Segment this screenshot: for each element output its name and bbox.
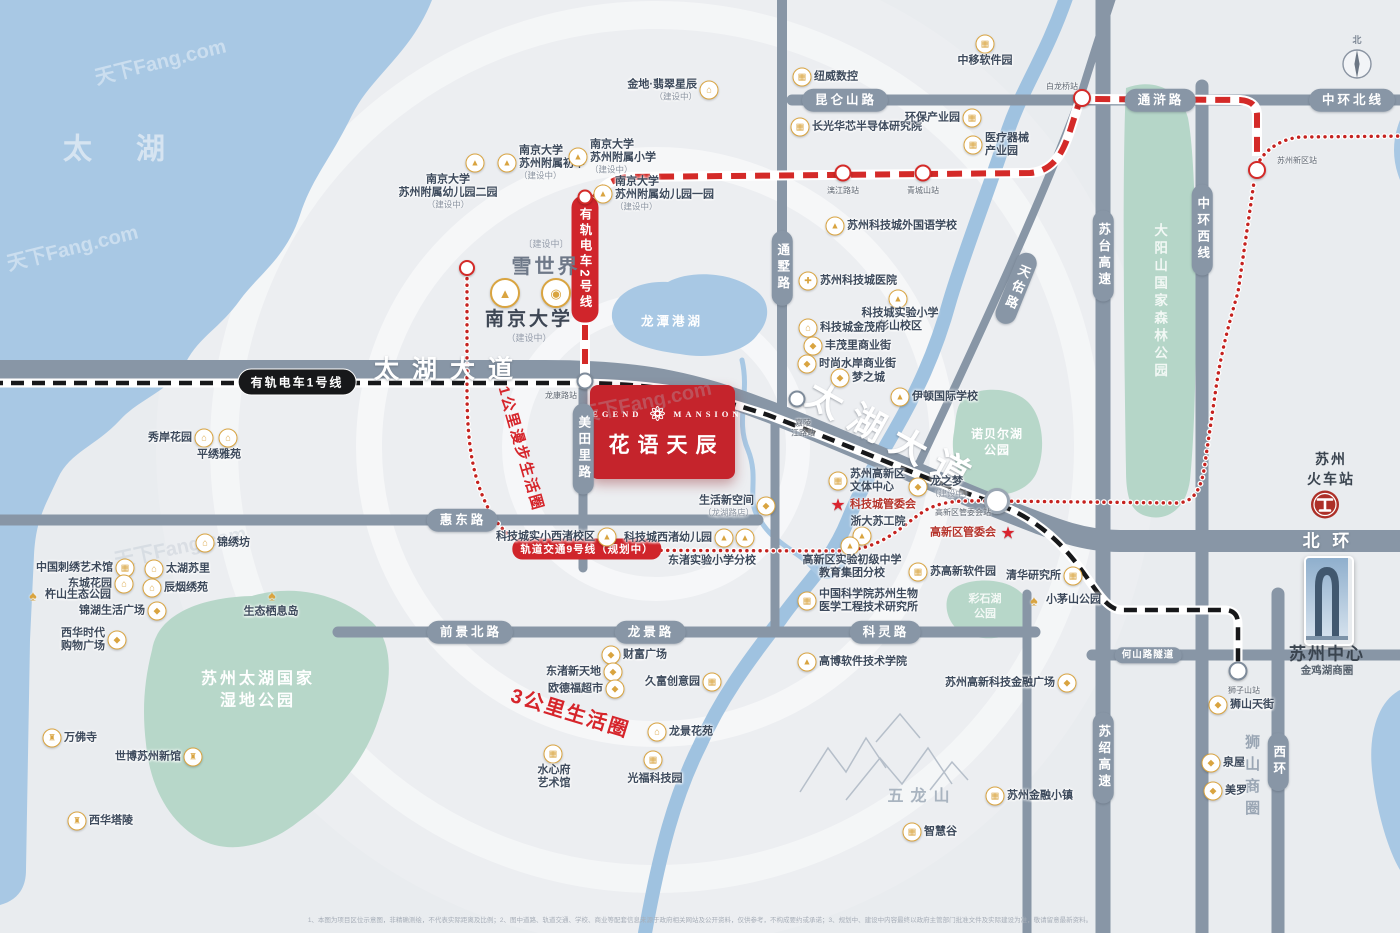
school-icon: ▲ xyxy=(891,388,910,407)
shop-icon: ◆ xyxy=(909,478,928,497)
poi-status: （建设中） xyxy=(590,165,656,175)
building-icon: ▦ xyxy=(986,787,1005,806)
poi-label: 生态栖息岛 xyxy=(244,605,299,618)
poi-label: 南京大学 苏州附属幼儿园一园（建设中） xyxy=(615,176,714,213)
poi-name: 财富广场 xyxy=(623,648,667,661)
suzhou-center-photo xyxy=(1304,556,1354,646)
area-label: 狮山商圈 xyxy=(1241,734,1261,822)
poi-label: 小茅山公园 xyxy=(1046,593,1101,606)
compass-north-label: 北 xyxy=(1340,33,1374,46)
station-dot xyxy=(459,260,475,276)
road-label: 龙景路 xyxy=(615,621,686,644)
hospital-icon: ✚ xyxy=(799,272,818,291)
poi-name: 科技城金茂府 xyxy=(820,321,886,334)
poi-label: 南京大学 苏州附属幼儿园二园（建设中） xyxy=(399,174,498,211)
poi-label: 苏州高新区 文体中心 xyxy=(850,468,905,494)
poi-label: 南京大学 苏州附属小学（建设中） xyxy=(590,139,656,176)
school-icon: ▲ xyxy=(841,537,860,556)
poi-name: 苏州金融小镇 xyxy=(1007,789,1073,802)
poi-name: 泉屋 xyxy=(1223,756,1245,769)
road-label: 美田里路 xyxy=(573,404,594,495)
house-icon: ⌂ xyxy=(143,579,162,598)
jinjihu-cbd-label: 金鸡湖商圈 xyxy=(1301,663,1354,678)
poi-name: 西华时代 购物广场 xyxy=(61,627,105,653)
building-icon: ▦ xyxy=(1064,567,1083,586)
poi-label: 西华时代 购物广场 xyxy=(61,627,105,653)
road-label: 中环西线 xyxy=(1192,185,1213,276)
temple-icon: ♜ xyxy=(43,729,62,748)
poi-label: 丰茂里商业街 xyxy=(825,339,891,352)
poi-label: 财富广场 xyxy=(623,648,667,661)
building-icon: ▦ xyxy=(963,109,982,128)
poi-name: 杵山生态公园 xyxy=(45,588,111,601)
poi-label: 苏州科技城医院 xyxy=(820,274,897,287)
poi-name: 金地·翡翠星辰 xyxy=(627,78,697,91)
poi-label: 水心府 艺术馆 xyxy=(538,764,571,790)
area-label: 诺贝尔湖 公园 xyxy=(971,426,1023,458)
poi-label: 锦绣坊 xyxy=(217,536,250,549)
poi-name: 世博苏州新馆 xyxy=(115,750,181,763)
building-icon: ▦ xyxy=(703,673,722,692)
poi-name: 伊顿国际学校 xyxy=(912,390,978,403)
snow-world-name: 雪世界 xyxy=(512,250,581,279)
poi-status: （龙湖路店） xyxy=(699,508,754,518)
poi-label: 世博苏州新馆 xyxy=(115,750,181,763)
poi-label: 太湖苏里 xyxy=(166,562,210,575)
road-label: 惠东路 xyxy=(427,509,498,532)
school-icon: ▲ xyxy=(826,217,845,236)
station-label: 苏州新区站 xyxy=(1277,156,1317,166)
station-dot xyxy=(789,391,806,408)
poi-label: 龙之梦（建设中） xyxy=(930,475,973,498)
poi-label: 东渚实验小学分校 xyxy=(668,554,756,567)
poi-name: 美罗 xyxy=(1225,784,1247,797)
road-label: 何山路隧道 xyxy=(1115,647,1182,663)
school-icon: ▲ xyxy=(598,528,617,547)
poi-name: 水心府 艺术馆 xyxy=(538,764,571,790)
school-icon: ▲ xyxy=(736,529,755,548)
poi-label: 西华塔陵 xyxy=(89,814,133,827)
nanjing-university-landmark: 南京大学 （建设中） xyxy=(485,304,573,344)
poi-name: 辰烟绣苑 xyxy=(164,581,208,594)
poi-label: 金地·翡翠星辰（建设中） xyxy=(627,78,697,101)
poi-label: 科技城管委会 xyxy=(850,498,916,511)
road-name: 北 环 xyxy=(1303,533,1354,550)
tram1-label: 有轨电车1号线 xyxy=(238,369,357,396)
building-icon: ▦ xyxy=(798,592,817,611)
east-water xyxy=(1371,120,1400,870)
poi-name: 科技城实小西渚校区 xyxy=(496,530,595,543)
building-icon: ▦ xyxy=(909,563,928,582)
poi-name: 医疗器械 产业园 xyxy=(985,132,1029,158)
poi-name: 西华塔陵 xyxy=(89,814,133,827)
shop-icon: ◆ xyxy=(1058,674,1077,693)
poi-name: 纽威数控 xyxy=(814,70,858,83)
poi-name: 浙大苏工院 xyxy=(851,515,906,528)
area-label: 大阳山国家森林公园 xyxy=(1150,223,1168,381)
poi-name: 高新区实验初级中学 教育集团分校 xyxy=(803,554,902,580)
road-label: 前景北路 xyxy=(427,621,513,644)
poi-name: 梦之城 xyxy=(852,371,885,384)
station-label: 漓江路站 xyxy=(827,186,859,196)
building-icon: ▦ xyxy=(644,751,663,770)
poi-name: 南京大学 苏州附属小学 xyxy=(590,139,656,165)
poi-label: 杵山生态公园 xyxy=(45,588,111,601)
road-label: 通墅路 xyxy=(772,231,793,306)
poi-status: （建设中） xyxy=(519,171,585,181)
building-icon: ▦ xyxy=(976,35,995,54)
station-dot xyxy=(835,165,852,182)
nanjing-university-status: （建设中） xyxy=(485,331,573,344)
poi-name: 高博软件技术学院 xyxy=(819,655,907,668)
school-icon: ▲ xyxy=(569,148,588,167)
shop-icon: ◆ xyxy=(757,497,776,516)
building-icon: ▦ xyxy=(793,68,812,87)
poi-label: 苏州高新科技金融广场 xyxy=(945,676,1055,689)
poi-label: 清华研究所 xyxy=(1006,569,1061,582)
station-dot xyxy=(1248,161,1266,179)
poi-label: 平绣雅苑 xyxy=(197,448,241,461)
house-icon: ⌂ xyxy=(145,560,164,579)
poi-name: 智慧谷 xyxy=(924,825,957,838)
railway-station-label: 苏州 火车站 xyxy=(1307,449,1355,489)
poi-label: 环保产业园 xyxy=(905,111,960,124)
station-dot xyxy=(1229,662,1248,681)
shop-icon: ◆ xyxy=(1204,782,1223,801)
project-brand-right: MANSION xyxy=(673,409,742,419)
building-icon: ▦ xyxy=(903,823,922,842)
poi-label: 时尚水岸商业街 xyxy=(819,357,896,370)
road-name: 太湖大道 xyxy=(374,358,526,383)
poi-label: 中移软件园 xyxy=(958,54,1013,67)
poi-label: 浙大苏工院 xyxy=(851,515,906,528)
tree-icon: ♠ xyxy=(25,587,42,604)
station-label: 嘉陵 江路站 xyxy=(791,418,815,437)
poi-label: 龙景花苑 xyxy=(669,725,713,738)
poi-name: 生活新空间 xyxy=(699,494,754,507)
poi-name: 苏州科技城医院 xyxy=(820,274,897,287)
poi-name: 锦湖生活广场 xyxy=(79,604,145,617)
poi-name: 南京大学 苏州附属幼儿园二园 xyxy=(399,174,498,200)
poi-label: 美罗 xyxy=(1225,784,1247,797)
station-dot xyxy=(578,190,593,205)
school-icon: ▲ xyxy=(715,529,734,548)
project-name: 花语天辰 xyxy=(601,429,725,459)
poi-name: 科技城西渚幼儿园 xyxy=(624,531,712,544)
nanjing-university-name: 南京大学 xyxy=(485,304,573,331)
poi-label: 泉屋 xyxy=(1223,756,1245,769)
poi-label: 苏州金融小镇 xyxy=(1007,789,1073,802)
poi-name: 南京大学 苏州附属幼儿园一园 xyxy=(615,176,714,202)
tree-icon: ♠ xyxy=(264,587,281,604)
shop-icon: ◆ xyxy=(1209,696,1228,715)
poi-label: 中国刺绣艺术馆 xyxy=(36,561,113,574)
poi-label: 光福科技园 xyxy=(628,772,683,785)
shop-icon: ◆ xyxy=(798,355,817,374)
poi-label: 辰烟绣苑 xyxy=(164,581,208,594)
building-icon: ▦ xyxy=(829,472,848,491)
station-label: 狮子山站 xyxy=(1228,686,1260,696)
star-icon: ★ xyxy=(830,497,847,514)
tree-icon: ♠ xyxy=(1026,592,1043,609)
poi-name: 中国科学院苏州生物 医学工程技术研究所 xyxy=(819,588,918,614)
station-label: 白龙桥站 xyxy=(1046,82,1078,92)
poi-name: 久富创意园 xyxy=(645,675,700,688)
house-icon: ⌂ xyxy=(799,319,818,338)
poi-name: 中国刺绣艺术馆 xyxy=(36,561,113,574)
poi-name: 太湖苏里 xyxy=(166,562,210,575)
poi-label: 医疗器械 产业园 xyxy=(985,132,1029,158)
station-dot xyxy=(915,165,932,182)
poi-label: 苏高新软件园 xyxy=(930,565,996,578)
poi-label: 伊顿国际学校 xyxy=(912,390,978,403)
poi-label: 纽威数控 xyxy=(814,70,858,83)
poi-label: 梦之城 xyxy=(852,371,885,384)
poi-name: 平绣雅苑 xyxy=(197,448,241,461)
poi-label: 秀岸花园 xyxy=(148,431,192,444)
school-icon: ▲ xyxy=(466,154,485,173)
shop-icon: ◆ xyxy=(148,602,167,621)
area-label: 苏州太湖国家 湿地公园 xyxy=(201,668,315,711)
house-icon: ⌂ xyxy=(115,575,134,594)
poi-name: 狮山天街 xyxy=(1230,698,1274,711)
shop-icon: ◆ xyxy=(831,369,850,388)
poi-label: 万佛寺 xyxy=(64,731,97,744)
temple-icon: ♜ xyxy=(68,812,87,831)
station-label: 龙康路站 xyxy=(545,391,577,401)
poi-name: 清华研究所 xyxy=(1006,569,1061,582)
poi-name: 苏州高新科技金融广场 xyxy=(945,676,1055,689)
poi-name: 东渚新天地 xyxy=(546,665,601,678)
poi-name: 苏高新软件园 xyxy=(930,565,996,578)
road-label: 苏台高速 xyxy=(1093,211,1114,302)
area-label: 彩石湖 公园 xyxy=(969,592,1002,622)
suzhou-center-label: 苏州中心 xyxy=(1289,640,1365,665)
building-icon: ▦ xyxy=(964,136,983,155)
shop-icon: ◆ xyxy=(804,337,823,356)
poi-name: 时尚水岸商业街 xyxy=(819,357,896,370)
poi-label: 中国科学院苏州生物 医学工程技术研究所 xyxy=(819,588,918,614)
station-dot xyxy=(577,373,594,390)
school-icon: ▲ xyxy=(889,290,908,309)
poi-name: 科技城管委会 xyxy=(850,498,916,511)
poi-name: 生态栖息岛 xyxy=(244,605,299,618)
disclaimer-text: 1、本图为项目区位示意图，非精确测绘，不代表实际距离及比例；2、图中道路、轨道交… xyxy=(260,914,1140,924)
area-label: 五龙山 xyxy=(887,786,956,808)
poi-name: 光福科技园 xyxy=(628,772,683,785)
house-icon: ⌂ xyxy=(700,81,719,100)
poi-label: 高新区实验初级中学 教育集团分校 xyxy=(803,554,902,580)
compass-icon: 北 xyxy=(1340,33,1374,87)
poi-name: 小茅山公园 xyxy=(1046,593,1101,606)
area-label: 太 湖 xyxy=(63,130,183,169)
poi-status: （建设中） xyxy=(627,92,697,102)
building-icon: ▦ xyxy=(791,118,810,137)
house-icon: ⌂ xyxy=(648,723,667,742)
station-label: 高新区管委会站 xyxy=(935,508,991,518)
house-icon: ⌂ xyxy=(196,534,215,553)
road-label: 中环北线 xyxy=(1309,89,1395,112)
poi-label: 科技城金茂府 xyxy=(820,321,886,334)
poi-label: 锦湖生活广场 xyxy=(79,604,145,617)
poi-status: （建设中） xyxy=(399,200,498,210)
poi-name: 龙景花苑 xyxy=(669,725,713,738)
poi-name: 苏州高新区 文体中心 xyxy=(850,468,905,494)
school-icon: ▲ xyxy=(498,154,517,173)
snow-world-status: 〔建设中〕 xyxy=(512,237,581,250)
poi-status: （建设中） xyxy=(615,202,714,212)
china-railway-icon xyxy=(1310,490,1340,525)
poi-name: 苏州科技城外国语学校 xyxy=(847,219,957,232)
poi-name: 秀岸花园 xyxy=(148,431,192,444)
school-icon: ▲ xyxy=(594,185,613,204)
poi-status: （建设中） xyxy=(930,489,973,499)
road-label: 西环 xyxy=(1268,733,1289,791)
poi-name: 环保产业园 xyxy=(905,111,960,124)
road-label: 昆仑山路 xyxy=(802,89,888,112)
poi-label: 东渚新天地 xyxy=(546,665,601,678)
area-label: 龙潭港湖 xyxy=(641,314,703,331)
poi-label: 狮山天街 xyxy=(1230,698,1274,711)
road-label: 苏绍高速 xyxy=(1093,713,1114,804)
poi-label: 科技城实小西渚校区 xyxy=(496,530,595,543)
shop-icon: ◆ xyxy=(108,631,127,650)
shop-icon: ◆ xyxy=(1202,754,1221,773)
house-icon: ⌂ xyxy=(195,429,214,448)
poi-name: 万佛寺 xyxy=(64,731,97,744)
road-label: 科灵路 xyxy=(850,621,921,644)
poi-name: 欧德福超市 xyxy=(548,682,603,695)
shop-icon: ◆ xyxy=(606,680,625,699)
project-marker: LEGEND MANSION 花语天辰 xyxy=(590,385,735,479)
house-icon: ⌂ xyxy=(219,429,238,448)
project-flower-icon xyxy=(649,405,666,422)
location-map: LEGEND MANSION 花语天辰 有轨电车1号线 有轨电车2号线 轨道交通… xyxy=(0,0,1400,933)
poi-label: 智慧谷 xyxy=(924,825,957,838)
road-label: 通浒路 xyxy=(1125,89,1196,112)
station-label: 青城山站 xyxy=(907,186,939,196)
star-icon: ★ xyxy=(1000,525,1017,542)
snow-world-landmark: 〔建设中〕 雪世界 xyxy=(512,237,581,279)
poi-name: 高新区管委会 xyxy=(930,526,996,539)
poi-name: 丰茂里商业街 xyxy=(825,339,891,352)
poi-label: 久富创意园 xyxy=(645,675,700,688)
school-icon: ▲ xyxy=(798,653,817,672)
poi-label: 高新区管委会 xyxy=(930,526,996,539)
poi-name: 龙之梦 xyxy=(930,475,973,488)
poi-name: 东渚实验小学分校 xyxy=(668,554,756,567)
poi-label: 欧德福超市 xyxy=(548,682,603,695)
poi-label: 苏州科技城外国语学校 xyxy=(847,219,957,232)
poi-name: 锦绣坊 xyxy=(217,536,250,549)
poi-label: 高博软件技术学院 xyxy=(819,655,907,668)
poi-label: 生活新空间（龙湖路店） xyxy=(699,494,754,517)
temple-icon: ♜ xyxy=(184,748,203,767)
poi-name: 中移软件园 xyxy=(958,54,1013,67)
poi-label: 科技城西渚幼儿园 xyxy=(624,531,712,544)
building-icon: ▦ xyxy=(544,745,563,764)
